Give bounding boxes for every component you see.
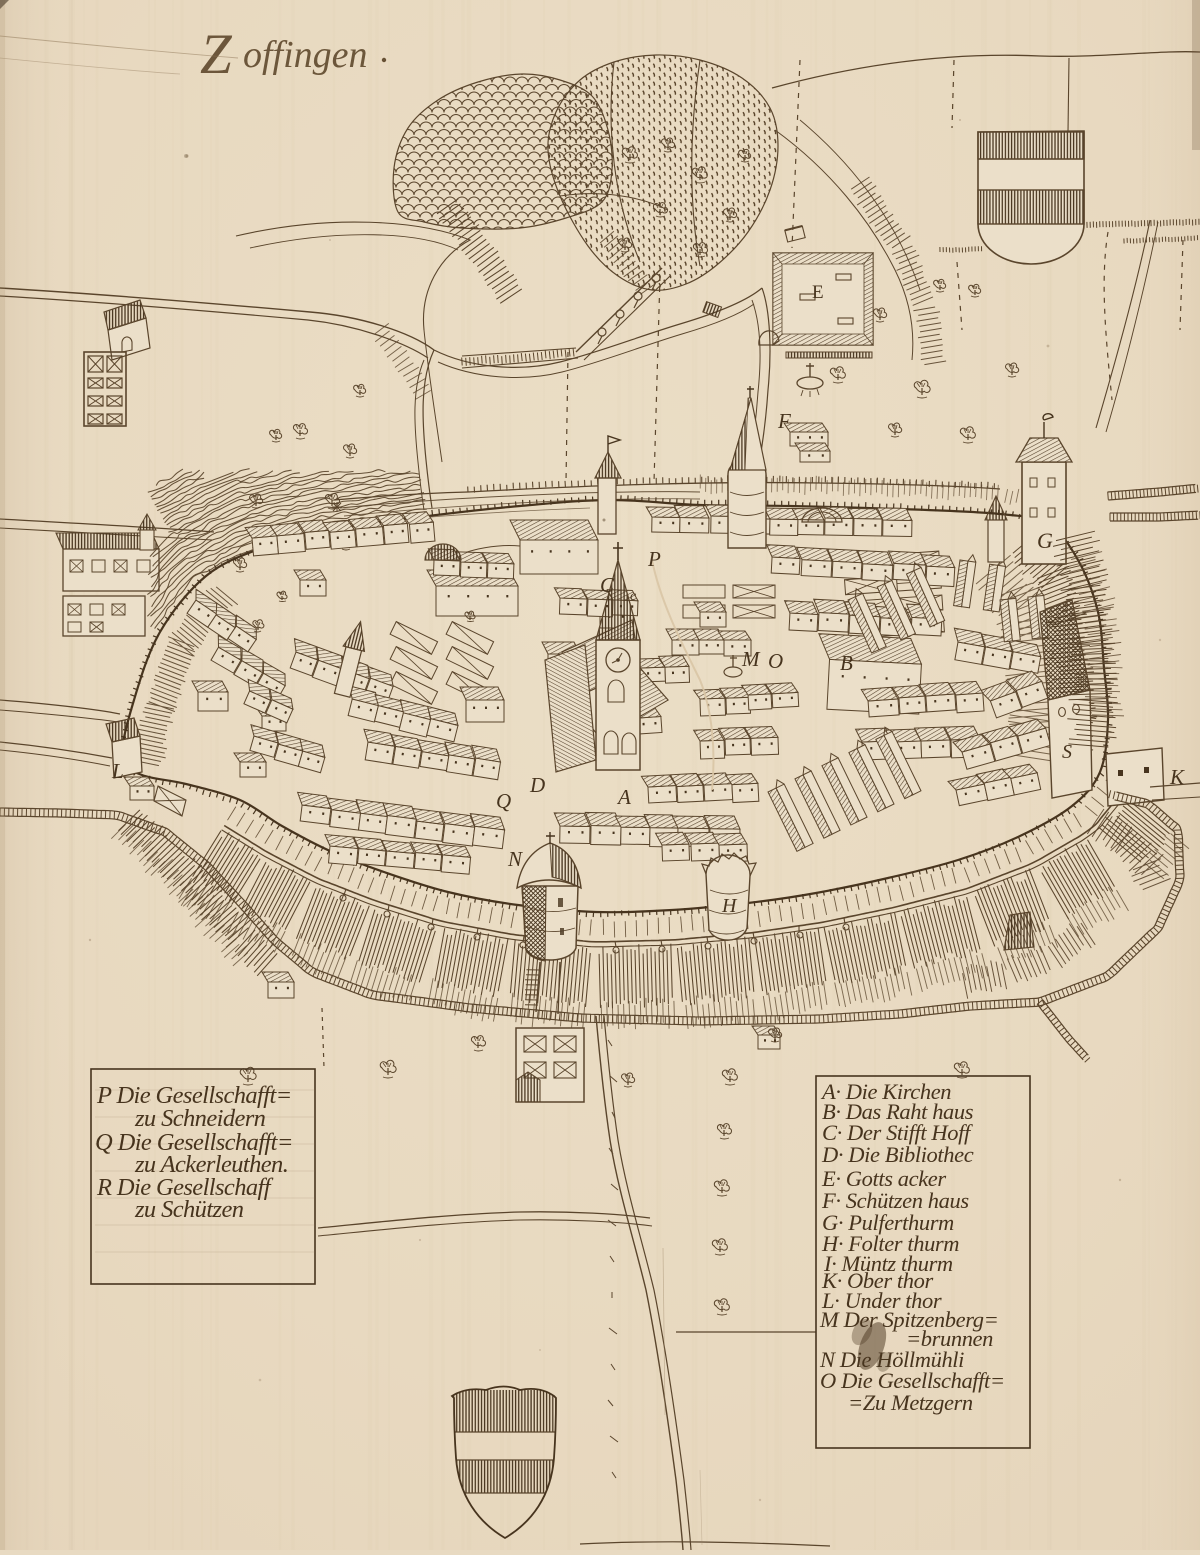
svg-text:N: N <box>507 847 523 871</box>
svg-text:offingen: offingen <box>243 34 368 76</box>
svg-text:H: H <box>721 895 738 917</box>
svg-text:=Zu Metzgern: =Zu Metzgern <box>848 1390 973 1415</box>
svg-text:L: L <box>111 759 124 783</box>
svg-text:D: D <box>529 773 545 797</box>
svg-text:D· Die Bibliothec: D· Die Bibliothec <box>821 1142 974 1167</box>
svg-text:Z: Z <box>200 23 233 86</box>
svg-text:zu Schneidern: zu Schneidern <box>134 1105 266 1132</box>
svg-text:A: A <box>616 785 631 809</box>
svg-text:E: E <box>812 282 824 303</box>
svg-text:B: B <box>840 651 853 675</box>
svg-text:Q: Q <box>496 789 511 813</box>
svg-text:G: G <box>1037 528 1053 553</box>
svg-text:M: M <box>741 647 761 671</box>
svg-text:c: c <box>630 589 637 604</box>
svg-text:P: P <box>647 547 661 571</box>
svg-text:zu Schützen: zu Schützen <box>134 1196 244 1223</box>
svg-text:O: O <box>768 649 783 673</box>
svg-text:C: C <box>600 573 615 597</box>
